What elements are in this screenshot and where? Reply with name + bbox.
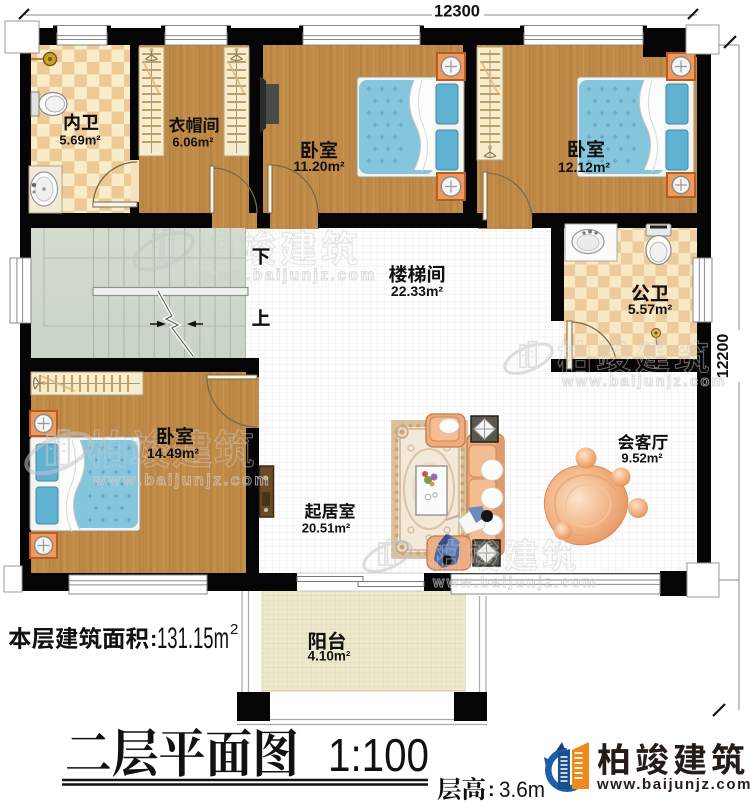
svg-text:4.10m²: 4.10m² (308, 649, 351, 664)
svg-text:12300: 12300 (434, 3, 480, 21)
svg-text:9.52m²: 9.52m² (621, 451, 663, 466)
svg-text:www.baijunjz.com: www.baijunjz.com (92, 472, 271, 489)
svg-text:12.12m²: 12.12m² (558, 159, 610, 175)
svg-text:www.baijunjz.com: www.baijunjz.com (596, 776, 750, 793)
svg-text:12200: 12200 (715, 334, 732, 379)
svg-text:6.06m²: 6.06m² (172, 135, 214, 150)
svg-text::: : (488, 779, 495, 801)
svg-text:11.20m²: 11.20m² (293, 158, 345, 174)
svg-text:www.baijunjz.com: www.baijunjz.com (561, 374, 727, 390)
svg-text:5.57m²: 5.57m² (628, 301, 673, 317)
svg-text:14.49m²: 14.49m² (147, 445, 199, 461)
svg-text:3.6m: 3.6m (499, 777, 545, 802)
svg-text:5.69m²: 5.69m² (59, 133, 101, 148)
svg-text:2: 2 (230, 621, 238, 638)
svg-text:131.15m: 131.15m (157, 622, 229, 655)
svg-text:www.baijunjz.com: www.baijunjz.com (202, 267, 377, 284)
svg-text:22.33m²: 22.33m² (391, 283, 443, 299)
svg-text:www.baijunjz.com: www.baijunjz.com (432, 575, 598, 591)
svg-text:1:100: 1:100 (328, 729, 429, 781)
svg-text:20.51m²: 20.51m² (302, 521, 351, 536)
